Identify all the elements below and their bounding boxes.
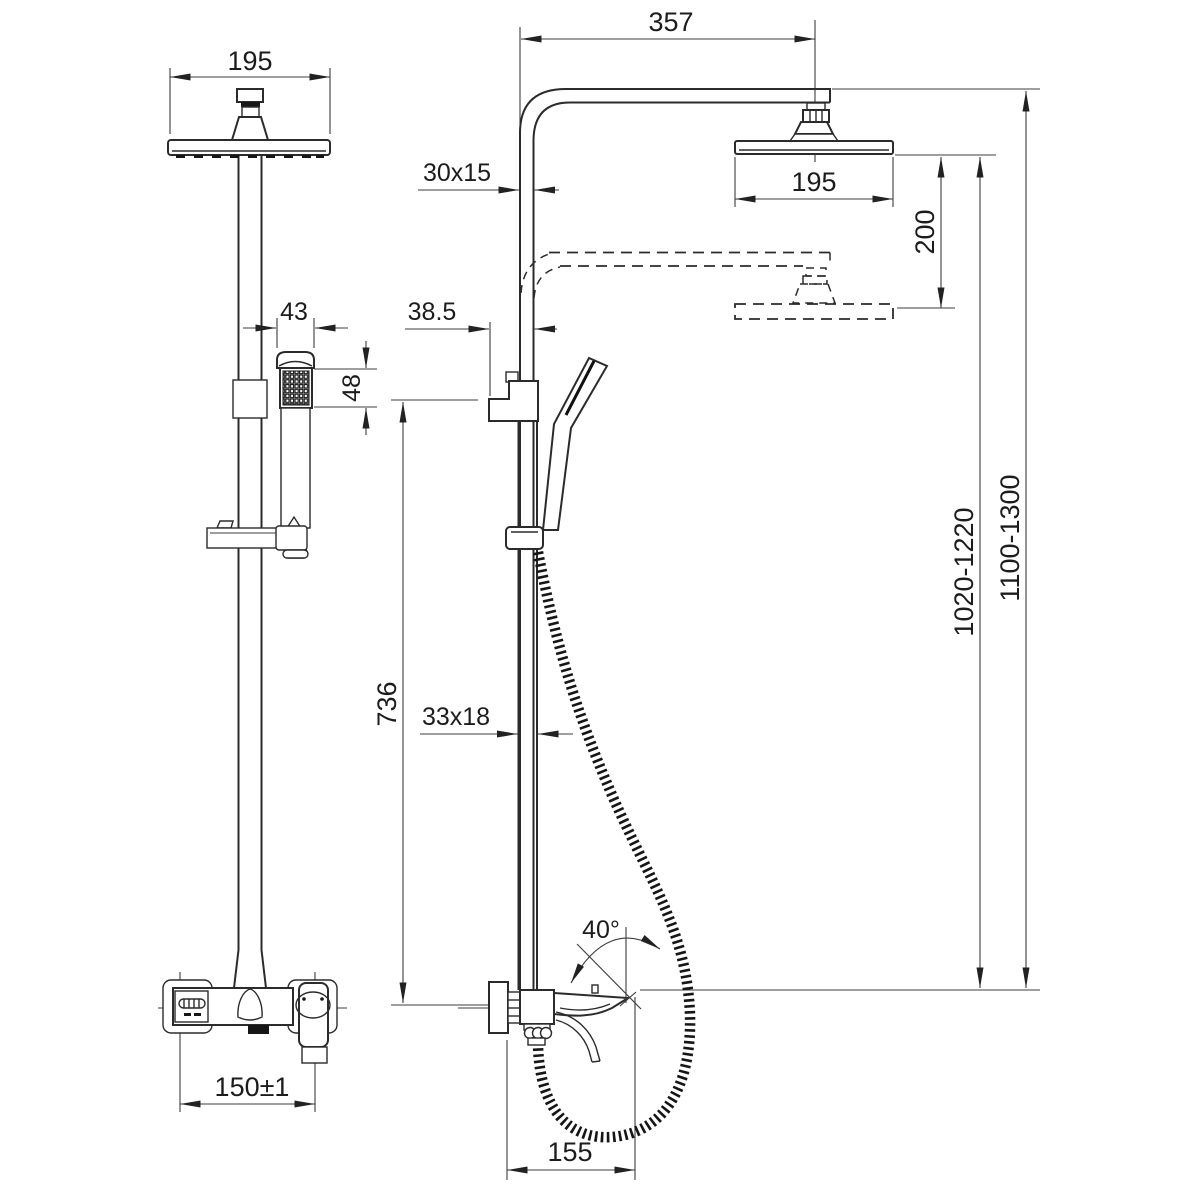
dim-label-upper-pipe-profile: 30x15 bbox=[423, 159, 491, 187]
dim-label-arm-reach: 357 bbox=[648, 7, 693, 37]
mixer-label-plate bbox=[248, 1025, 269, 1034]
dim-label-height-adjustment: 200 bbox=[910, 209, 940, 254]
pipe-coupler bbox=[233, 380, 267, 418]
dim-label-spout-projection: 155 bbox=[547, 1137, 592, 1167]
dim-lower-column-length: 736 bbox=[372, 402, 403, 1003]
dim-height-adjustment: 200 bbox=[910, 157, 941, 308]
mixer-side bbox=[489, 982, 628, 1062]
dim-handshower-width: 43 bbox=[243, 298, 348, 348]
dim-overall-height-range: 1100-1300 bbox=[995, 91, 1026, 988]
dim-label-inlet-centers: 150±1 bbox=[215, 1072, 290, 1102]
dim-column-height-range: 1020-1220 bbox=[949, 157, 980, 988]
mixer-body-front bbox=[173, 988, 293, 1025]
dim-label-handle-swing-angle: 40° bbox=[582, 916, 620, 944]
dim-spout-projection: 155 bbox=[507, 1137, 635, 1170]
riser-pipe-front bbox=[233, 155, 267, 988]
dim-label-column-height-range: 1020-1220 bbox=[949, 507, 979, 636]
hose-connector-nut bbox=[528, 1038, 545, 1045]
dim-label-handshower-face-height: 48 bbox=[338, 374, 366, 402]
slider-clamp bbox=[207, 517, 308, 558]
lowered-position-dashed bbox=[521, 253, 893, 320]
hand-shower-holder-side bbox=[489, 372, 538, 421]
dim-handshower-face-height: 48 bbox=[314, 341, 377, 435]
rain-shower-head-side bbox=[735, 103, 893, 154]
technical-drawing-canvas: 195 357 30x15 38.5 195 200 bbox=[0, 0, 1200, 1200]
dim-label-lower-pipe-profile: 33x18 bbox=[422, 703, 490, 731]
dim-upper-pipe-profile: 30x15 bbox=[418, 159, 559, 190]
dim-label-lower-column-length: 736 bbox=[372, 681, 402, 726]
dim-label-holder-offset: 38.5 bbox=[408, 298, 457, 326]
wall-flange-side bbox=[489, 982, 508, 1033]
shower-hose bbox=[538, 552, 690, 1137]
dim-label-handshower-width: 43 bbox=[280, 298, 308, 326]
dim-label-head-width-side: 195 bbox=[791, 167, 836, 197]
dim-head-width-side: 195 bbox=[735, 157, 893, 207]
dim-arm-reach: 357 bbox=[521, 7, 815, 39]
rain-shower-head-front bbox=[168, 89, 330, 158]
mixer-body-side bbox=[520, 990, 554, 1024]
spray-face-grid bbox=[283, 371, 309, 405]
shower-system-dimension-drawing: 195 357 30x15 38.5 195 200 bbox=[0, 0, 1200, 1200]
dim-label-overall-height-range: 1100-1300 bbox=[995, 474, 1025, 601]
shower-column-pipe-side bbox=[519, 89, 831, 990]
spout-side bbox=[556, 1012, 600, 1061]
dim-label-head-width-front: 195 bbox=[227, 46, 272, 76]
mixer-handle-side bbox=[554, 993, 628, 1016]
dim-lower-pipe-profile: 33x18 bbox=[420, 703, 573, 734]
side-view bbox=[391, 20, 1040, 1180]
dim-inlet-centers: 150±1 bbox=[180, 1072, 315, 1104]
front-view bbox=[158, 89, 347, 1112]
hand-shower-cradle bbox=[506, 527, 543, 549]
